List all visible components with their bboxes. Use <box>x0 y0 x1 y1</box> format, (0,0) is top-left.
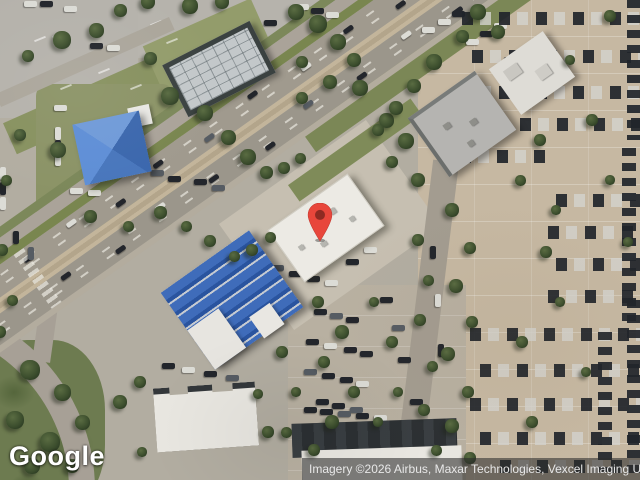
tree <box>309 15 327 33</box>
rooftop-unit <box>503 62 523 81</box>
tree <box>123 221 134 232</box>
parked-car <box>264 20 277 26</box>
tree <box>14 129 26 141</box>
parking-column-cars <box>627 300 640 480</box>
tree <box>373 417 383 427</box>
parked-car <box>314 309 327 315</box>
parked-car <box>0 197 6 210</box>
parked-car <box>340 377 353 383</box>
moving-car <box>60 271 72 281</box>
parked-car <box>332 403 345 409</box>
tree <box>431 445 442 456</box>
tree <box>330 34 346 50</box>
tree <box>325 415 339 429</box>
location-pin[interactable] <box>307 203 333 242</box>
tree <box>278 162 290 174</box>
parked-car <box>90 43 103 49</box>
parked-car <box>435 294 441 307</box>
tree <box>565 55 575 65</box>
tree <box>134 376 146 388</box>
tree <box>296 56 308 68</box>
tree <box>407 79 421 93</box>
parked-car <box>54 105 67 111</box>
tree <box>318 356 330 368</box>
tree <box>204 235 216 247</box>
parked-car <box>392 325 405 331</box>
tree <box>551 205 561 215</box>
tree <box>586 114 598 126</box>
tree <box>386 156 398 168</box>
rooftop-unit <box>469 118 478 127</box>
parked-car <box>338 411 351 417</box>
parked-car <box>304 407 317 413</box>
moving-car <box>247 90 259 100</box>
tree <box>114 4 127 17</box>
tree <box>581 367 591 377</box>
moving-car <box>152 159 164 169</box>
tree <box>144 52 157 65</box>
tree <box>246 244 258 256</box>
tree <box>295 153 306 164</box>
tree <box>335 325 349 339</box>
tree <box>54 384 71 401</box>
tree <box>456 30 469 43</box>
tree <box>7 295 18 306</box>
parked-car <box>40 1 53 7</box>
parked-car <box>24 1 37 7</box>
tree <box>182 0 198 14</box>
tree <box>605 175 615 185</box>
tree <box>534 134 546 146</box>
rooftop-unit <box>298 244 305 251</box>
parked-car <box>13 231 19 244</box>
tree <box>6 411 24 429</box>
tree <box>262 426 274 438</box>
tree <box>347 53 361 67</box>
parked-car <box>162 363 175 369</box>
tree <box>75 415 90 430</box>
parking-row-cars <box>470 328 640 341</box>
tree <box>411 173 425 187</box>
tree <box>526 416 538 428</box>
parked-car <box>356 413 369 419</box>
tree <box>197 105 213 121</box>
tree <box>555 297 565 307</box>
google-logo[interactable]: Google <box>9 441 105 472</box>
tree <box>154 206 167 219</box>
parking-row-cars <box>520 118 640 131</box>
parked-car <box>204 371 217 377</box>
tree <box>260 166 273 179</box>
moving-car <box>342 24 354 34</box>
imagery-attribution: Imagery ©2026 Airbus, Maxar Technologies… <box>302 458 640 480</box>
tree <box>449 279 463 293</box>
tree <box>352 80 368 96</box>
tree <box>291 387 301 397</box>
tree <box>253 389 263 399</box>
tree <box>113 395 127 409</box>
building-white-section-large <box>187 308 246 369</box>
parked-car <box>55 127 61 140</box>
parked-car <box>322 373 335 379</box>
tree <box>427 361 438 372</box>
tree <box>240 149 256 165</box>
parking-column-cars <box>598 332 612 472</box>
parked-car <box>430 246 436 259</box>
parked-car <box>311 8 324 14</box>
tree <box>20 360 40 380</box>
map-canvas[interactable]: Google Imagery ©2026 Airbus, Maxar Techn… <box>0 0 640 480</box>
parked-car <box>226 375 239 381</box>
rooftop-unit <box>348 215 355 222</box>
rooftop-unit <box>534 63 552 81</box>
parked-car <box>306 339 319 345</box>
tree <box>398 133 414 149</box>
moving-car <box>208 173 220 183</box>
parked-car <box>70 188 83 194</box>
parked-car <box>326 12 339 18</box>
moving-car <box>65 218 77 228</box>
moving-car <box>400 30 412 40</box>
tree <box>604 10 616 22</box>
pin-inner-circle <box>315 210 325 220</box>
parked-car <box>330 313 343 319</box>
tree <box>84 210 97 223</box>
tree <box>412 234 424 246</box>
tree <box>161 87 179 105</box>
tree <box>50 142 66 158</box>
tree <box>265 232 276 243</box>
parked-car <box>360 351 373 357</box>
moving-car <box>264 141 276 151</box>
tree <box>296 92 308 104</box>
parked-car <box>438 19 451 25</box>
tree <box>462 386 474 398</box>
parked-car <box>346 317 359 323</box>
tree <box>426 54 442 70</box>
parked-car <box>364 247 377 253</box>
parked-car <box>212 185 225 191</box>
tree <box>221 130 236 145</box>
tree <box>491 25 505 39</box>
parked-car <box>28 247 34 260</box>
tree <box>312 296 324 308</box>
parked-car <box>346 259 359 265</box>
rooftop-unit <box>442 122 451 131</box>
tree <box>470 4 486 20</box>
tree <box>540 246 552 258</box>
parked-car <box>151 170 164 176</box>
parking-column-cars <box>627 0 640 140</box>
moving-car <box>115 244 127 254</box>
tree <box>53 31 71 49</box>
tree <box>276 346 288 358</box>
tree <box>389 101 403 115</box>
parked-car <box>344 347 357 353</box>
parked-car <box>324 343 337 349</box>
tree <box>1 175 12 186</box>
building-white-section-small <box>249 303 284 339</box>
tree <box>423 275 434 286</box>
tree <box>308 444 320 456</box>
parked-car <box>88 190 101 196</box>
attribution-text: Imagery ©2026 Airbus, Maxar Technologies… <box>309 462 640 476</box>
parked-car <box>168 176 181 182</box>
pin-body <box>308 203 332 241</box>
tree <box>515 175 526 186</box>
tree <box>441 347 455 361</box>
parked-car <box>194 179 207 185</box>
parked-car <box>304 369 317 375</box>
parked-car <box>380 297 393 303</box>
building-sawtooth-white <box>153 382 259 453</box>
moving-car <box>115 198 127 208</box>
parking-row-cars <box>470 398 640 411</box>
tree <box>516 336 528 348</box>
moving-car <box>203 132 215 142</box>
tree <box>281 427 292 438</box>
tree <box>414 314 426 326</box>
parking-row-cars <box>480 364 640 377</box>
parked-car <box>398 357 411 363</box>
tree <box>445 419 459 433</box>
moving-car <box>395 0 407 10</box>
tree <box>623 237 633 247</box>
tree <box>372 124 384 136</box>
parked-car <box>422 27 435 33</box>
parked-car <box>316 399 329 405</box>
tree <box>393 387 403 397</box>
parked-car <box>107 45 120 51</box>
tree <box>464 242 476 254</box>
tree <box>229 251 240 262</box>
tree <box>89 23 104 38</box>
tree <box>348 386 360 398</box>
tree <box>22 50 34 62</box>
tree <box>369 297 379 307</box>
tree <box>418 404 430 416</box>
tree <box>323 75 337 89</box>
tree <box>288 4 304 20</box>
parked-car <box>325 280 338 286</box>
parked-car <box>64 6 77 12</box>
parked-car <box>182 367 195 373</box>
tree <box>181 221 192 232</box>
rooftop-unit <box>467 139 475 147</box>
tree <box>445 203 459 217</box>
tree <box>137 447 147 457</box>
parking-row-cars <box>480 432 640 445</box>
tree <box>386 336 398 348</box>
tree <box>466 316 478 328</box>
